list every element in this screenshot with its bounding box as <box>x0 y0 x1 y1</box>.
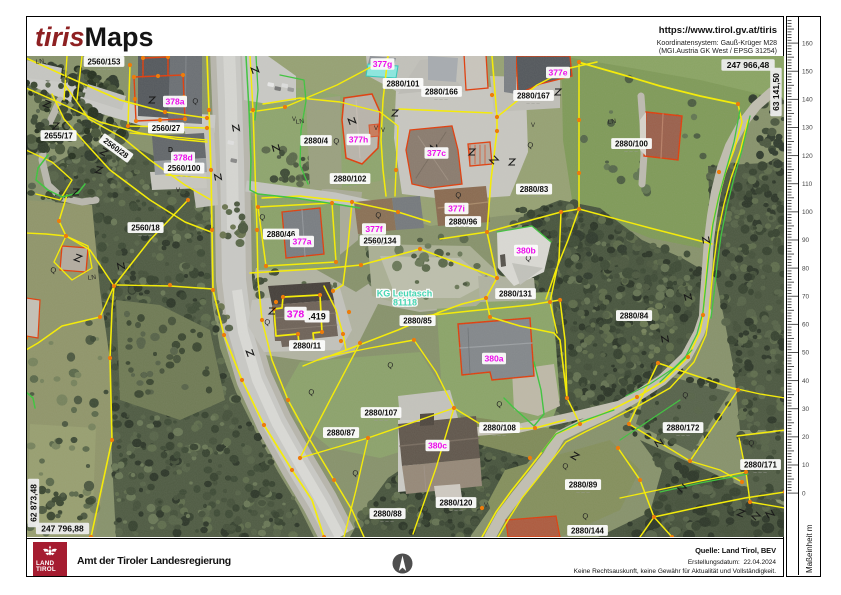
svg-text:10: 10 <box>802 462 810 469</box>
svg-text:80: 80 <box>802 265 810 272</box>
svg-text:140: 140 <box>802 97 813 104</box>
svg-text:40: 40 <box>802 378 810 385</box>
svg-text:100: 100 <box>802 209 813 216</box>
svg-text:160: 160 <box>802 40 813 47</box>
svg-text:150: 150 <box>802 68 813 75</box>
svg-text:Maßeinheit m: Maßeinheit m <box>805 524 814 573</box>
svg-text:60: 60 <box>802 322 810 329</box>
svg-text:130: 130 <box>802 125 813 132</box>
svg-text:70: 70 <box>802 293 810 300</box>
svg-text:120: 120 <box>802 153 813 160</box>
svg-text:90: 90 <box>802 237 810 244</box>
svg-text:50: 50 <box>802 350 810 357</box>
svg-text:0: 0 <box>802 490 806 497</box>
svg-text:110: 110 <box>802 181 813 188</box>
svg-text:30: 30 <box>802 406 810 413</box>
svg-text:20: 20 <box>802 434 810 441</box>
